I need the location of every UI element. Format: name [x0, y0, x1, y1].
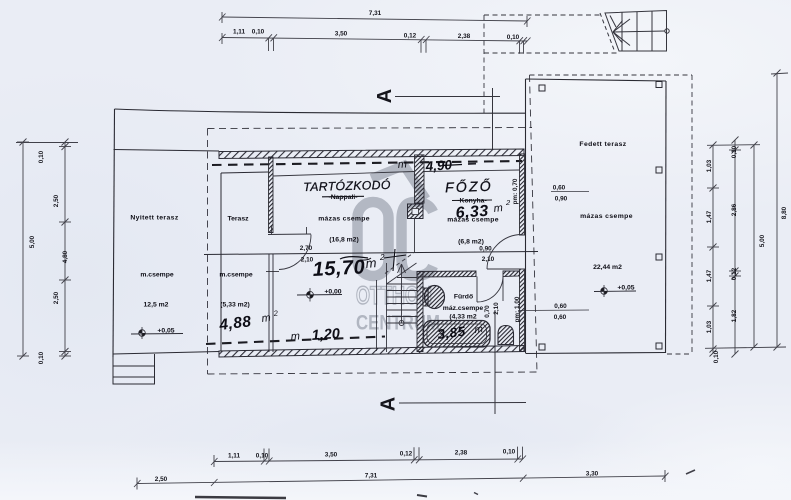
svg-text:0,60: 0,60 [554, 303, 567, 310]
svg-text:2,50: 2,50 [155, 476, 168, 483]
svg-text:(5,33 m2): (5,33 m2) [220, 302, 249, 309]
svg-text:1,20: 1,20 [311, 326, 340, 344]
svg-text:A: A [378, 397, 400, 411]
svg-text:7,31: 7,31 [369, 10, 382, 17]
svg-text:(4,33 m2: (4,33 m2 [449, 314, 476, 321]
svg-text:Terasz: Terasz [227, 216, 249, 223]
svg-text:2,10: 2,10 [493, 302, 500, 315]
svg-text:mázas csempe: mázas csempe [580, 213, 633, 220]
svg-text:2,50: 2,50 [53, 291, 60, 304]
svg-text:Nyitett terasz: Nyitett terasz [130, 215, 178, 222]
svg-text:15,70: 15,70 [312, 256, 366, 281]
svg-text:m.csempe: m.csempe [219, 272, 252, 279]
svg-text:0,10: 0,10 [503, 449, 516, 456]
svg-text:(6,8 m2): (6,8 m2) [458, 239, 484, 246]
svg-text:máz.csempe: máz.csempe [443, 305, 484, 312]
svg-text:0,10: 0,10 [38, 351, 45, 364]
svg-text:FŐZŐ: FŐZŐ [445, 178, 493, 196]
svg-text:2,10: 2,10 [482, 256, 495, 263]
svg-text:0,60: 0,60 [554, 314, 567, 321]
svg-text:m.csempe: m.csempe [140, 272, 173, 279]
svg-text:m: m [397, 158, 407, 171]
svg-text:m: m [493, 202, 503, 215]
svg-text:-Nappali-: -Nappali- [328, 194, 357, 201]
svg-text:2,70: 2,70 [300, 245, 313, 252]
svg-text:0,12: 0,12 [400, 451, 413, 458]
svg-text:0,10: 0,10 [38, 150, 45, 163]
svg-text:(16,8 m2): (16,8 m2) [329, 237, 358, 244]
svg-text:m: m [474, 324, 484, 336]
svg-text:1,11: 1,11 [228, 453, 241, 460]
svg-text:0,60: 0,60 [553, 185, 566, 192]
svg-text:0,10: 0,10 [507, 34, 520, 41]
svg-text:1,03: 1,03 [706, 159, 713, 172]
svg-text:4,80: 4,80 [62, 250, 69, 263]
svg-text:0,10: 0,10 [713, 350, 720, 363]
svg-text:TARTÓZKODÓ: TARTÓZKODÓ [303, 177, 391, 194]
svg-text:3,50: 3,50 [325, 452, 338, 459]
svg-text:pm: 1,00: pm: 1,00 [514, 296, 521, 322]
svg-text:2,50: 2,50 [53, 194, 60, 207]
svg-text:0,10: 0,10 [252, 29, 265, 36]
svg-text:12,5 m2: 12,5 m2 [144, 302, 169, 309]
svg-text:7,31: 7,31 [365, 473, 378, 480]
svg-text:1,11: 1,11 [233, 29, 246, 36]
svg-text:2,38: 2,38 [455, 450, 468, 457]
svg-text:Fürdő: Fürdő [454, 294, 473, 301]
svg-text:mázas csempe: mázas csempe [447, 217, 499, 224]
svg-text:1,47: 1,47 [706, 210, 713, 223]
svg-text:2,86: 2,86 [731, 203, 738, 216]
svg-text:+0,05: +0,05 [617, 285, 634, 292]
svg-text:3,30: 3,30 [586, 471, 599, 478]
svg-text:0,90: 0,90 [479, 246, 492, 253]
svg-text:0,90: 0,90 [555, 196, 568, 203]
svg-text:0,10: 0,10 [256, 453, 269, 460]
svg-text:5,00: 5,00 [29, 235, 36, 248]
svg-text:Fedett terasz: Fedett terasz [579, 141, 626, 148]
svg-text:mázas csempe: mázas csempe [318, 216, 370, 223]
svg-text:0,10: 0,10 [731, 145, 738, 158]
svg-text:22,44 m2: 22,44 m2 [593, 264, 622, 271]
svg-text:5,00: 5,00 [759, 234, 766, 247]
svg-text:0,70: 0,70 [484, 305, 491, 318]
svg-text:m: m [290, 330, 300, 343]
svg-text:A: A [374, 89, 396, 103]
svg-text:3,50: 3,50 [335, 31, 348, 38]
svg-text:pm: 0,70: pm: 0,70 [512, 178, 519, 204]
svg-text:1,47: 1,47 [706, 269, 713, 282]
svg-text:1,03: 1,03 [706, 320, 713, 333]
svg-text:0,12: 0,12 [731, 267, 738, 280]
svg-text:1,82: 1,82 [731, 309, 738, 322]
svg-text:0,12: 0,12 [404, 33, 417, 40]
svg-text:m: m [261, 312, 272, 325]
svg-text:2: 2 [505, 198, 511, 207]
svg-text:2,38: 2,38 [458, 33, 471, 40]
svg-text:8,80: 8,80 [781, 206, 788, 219]
